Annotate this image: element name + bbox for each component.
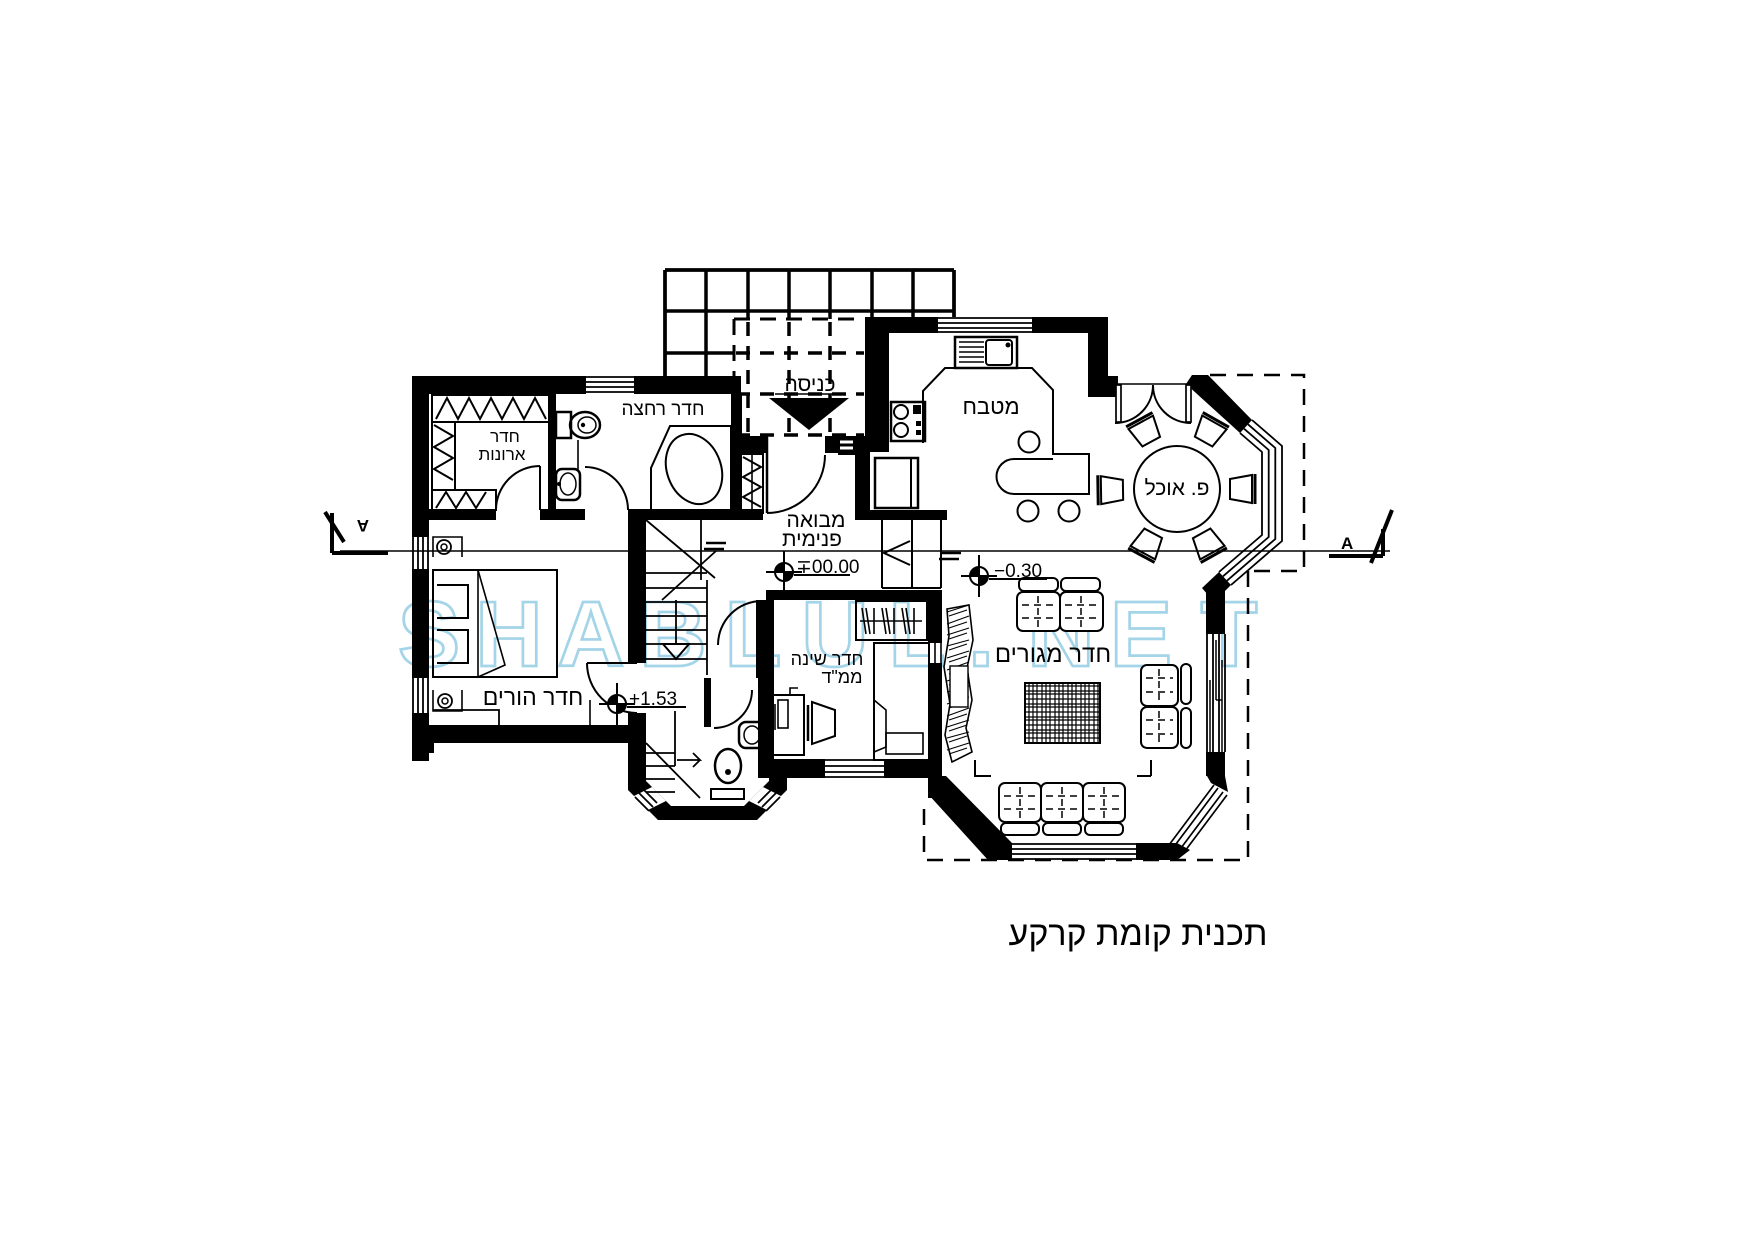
svg-text:חדר מגורים: חדר מגורים [995,641,1111,668]
svg-text:A: A [557,582,624,686]
svg-text:חדר רחצה: חדר רחצה [622,399,705,420]
svg-text:B: B [639,582,706,686]
svg-text:כניסה: כניסה [784,373,835,396]
svg-text:פ. אוכל: פ. אוכל [1145,477,1210,500]
svg-text:חדר: חדר [490,427,520,446]
svg-text:A: A [1341,534,1353,553]
svg-text:פנימית: פנימית [782,528,842,551]
svg-text:תכנית קומת קרקע: תכנית קומת קרקע [1009,915,1268,953]
svg-text:A: A [357,516,369,535]
svg-text:חדר שינה: חדר שינה [791,649,864,669]
svg-text:מטבח: מטבח [962,394,1019,419]
svg-text:ארונות: ארונות [479,445,526,464]
svg-text:ממ"ד: ממ"ד [821,667,862,687]
svg-text:חדר הורים: חדר הורים [483,684,584,710]
